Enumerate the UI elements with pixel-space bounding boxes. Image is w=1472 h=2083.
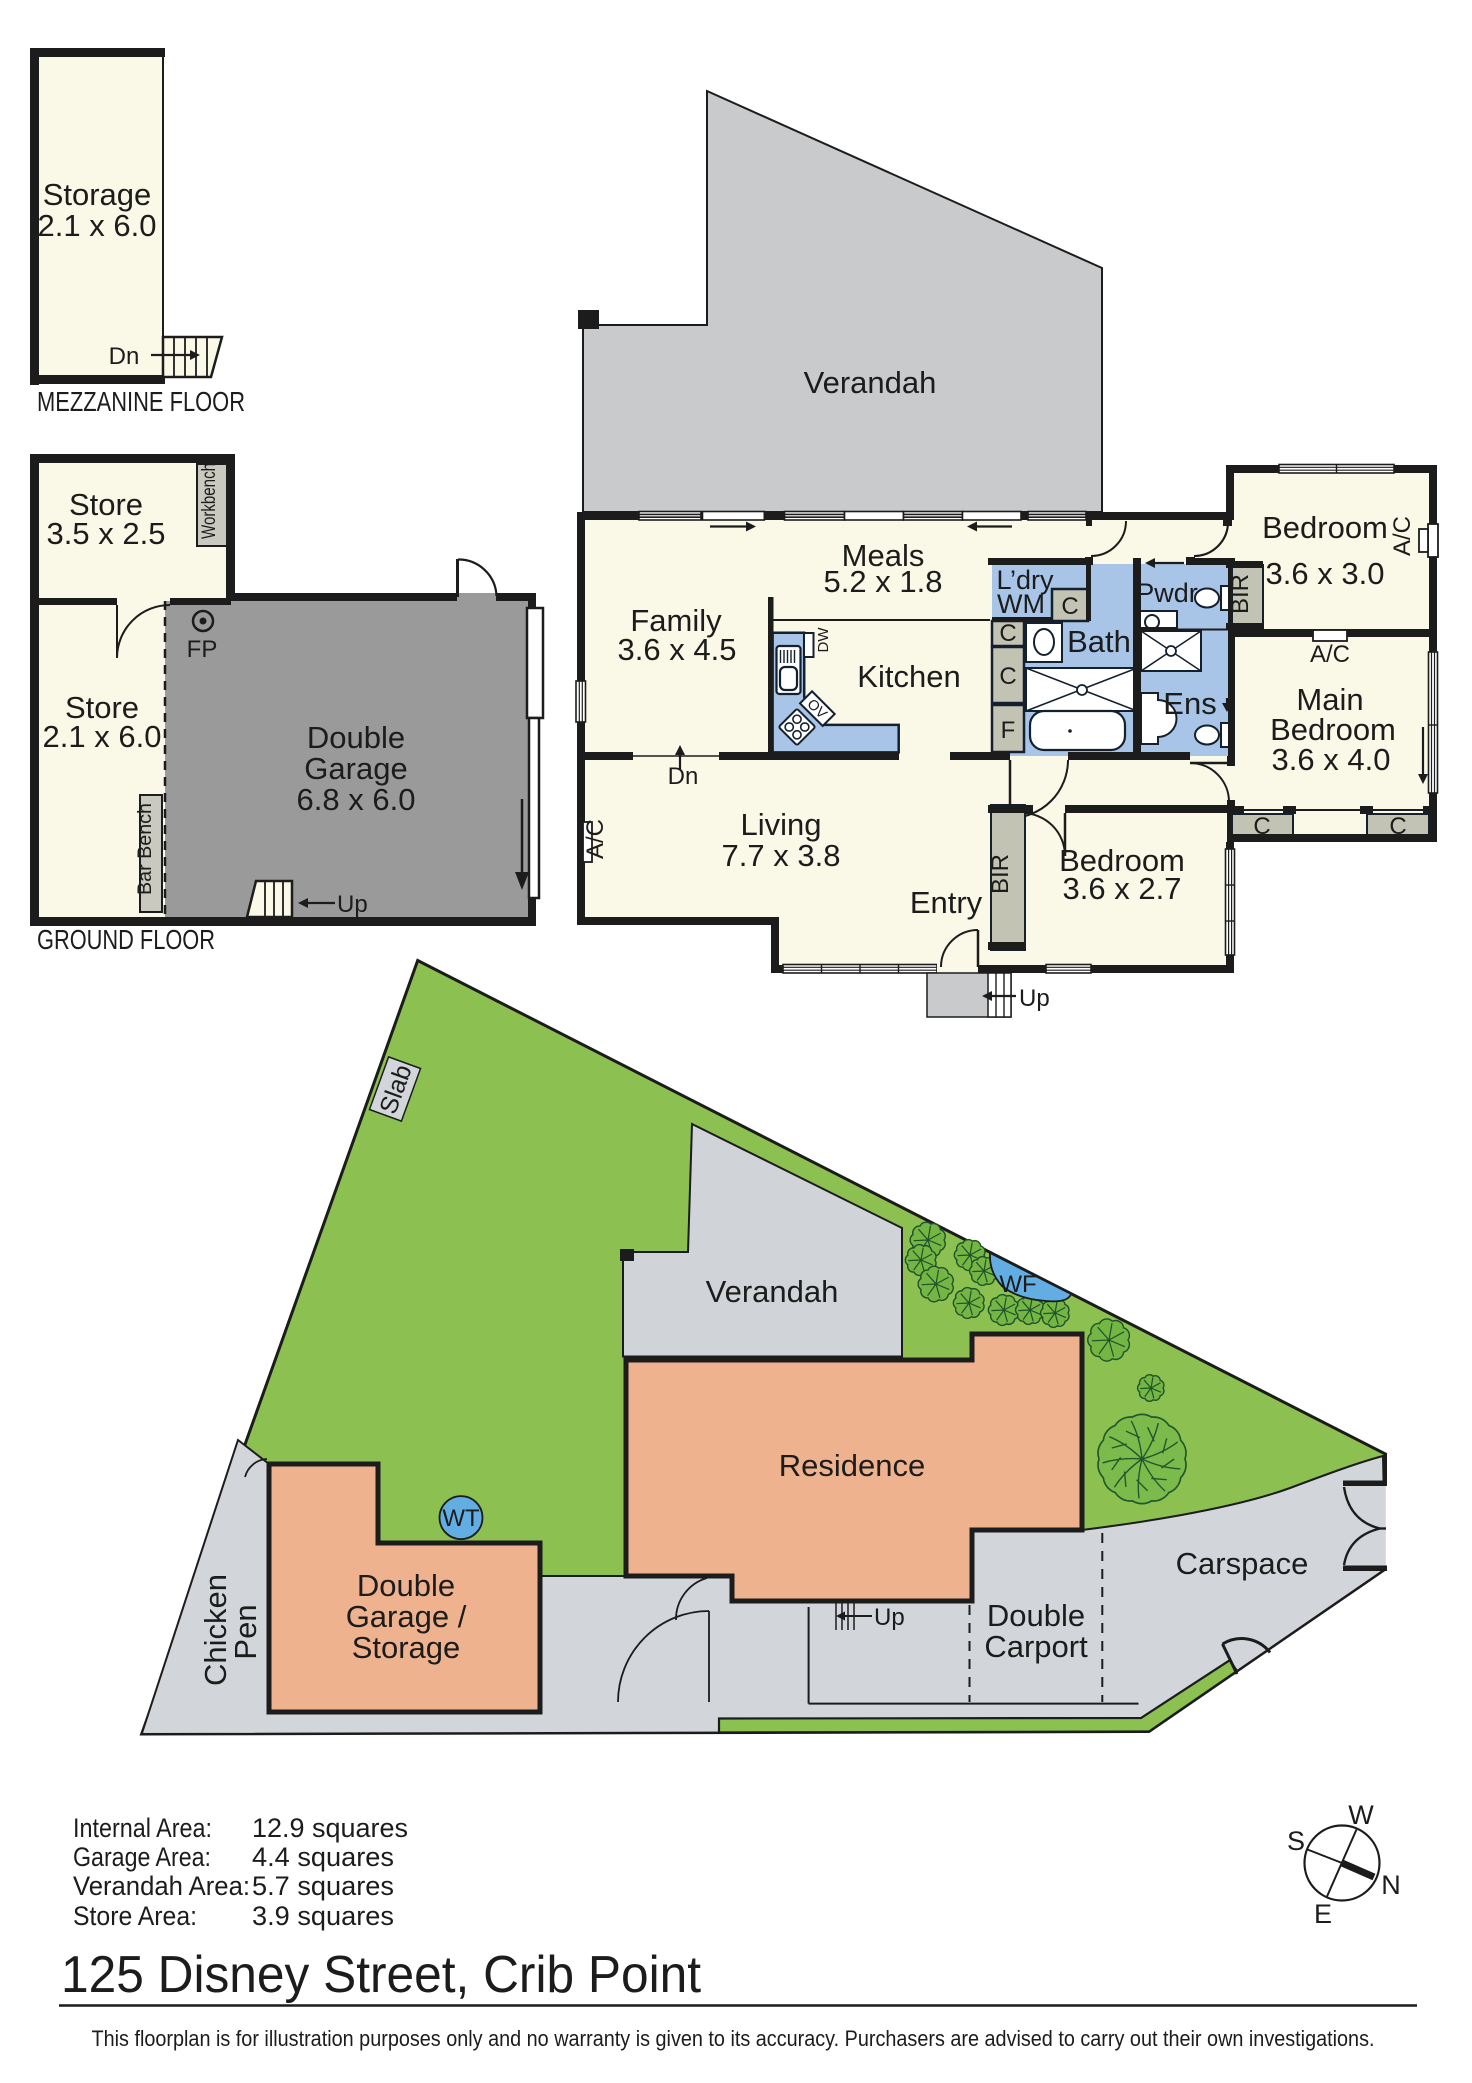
svg-text:3.6 x 4.5: 3.6 x 4.5	[618, 632, 737, 667]
svg-text:Internal Area:: Internal Area:	[73, 1813, 212, 1843]
svg-text:Pwdr: Pwdr	[1136, 578, 1198, 608]
svg-text:Carport: Carport	[984, 1629, 1088, 1664]
svg-text:C: C	[1253, 813, 1270, 840]
svg-text:Double: Double	[357, 1568, 455, 1603]
svg-text:3.6 x 2.7: 3.6 x 2.7	[1063, 871, 1182, 906]
svg-text:Storage: Storage	[43, 177, 152, 212]
svg-text:Store Area:: Store Area:	[73, 1901, 197, 1931]
svg-text:A/C: A/C	[582, 819, 609, 859]
svg-text:Garage: Garage	[304, 751, 407, 786]
svg-text:E: E	[1314, 1899, 1332, 1929]
svg-text:2.1 x 6.0: 2.1 x 6.0	[38, 208, 157, 243]
svg-text:BIR: BIR	[987, 854, 1014, 894]
svg-text:A/C: A/C	[1310, 641, 1350, 668]
svg-text:WF: WF	[999, 1271, 1036, 1298]
svg-text:Ens: Ens	[1163, 686, 1216, 721]
svg-text:Double: Double	[307, 720, 405, 755]
svg-text:Up: Up	[1019, 985, 1050, 1012]
svg-text:Verandah: Verandah	[804, 365, 937, 400]
svg-text:5.2 x 1.8: 5.2 x 1.8	[824, 564, 943, 599]
svg-text:Bedroom: Bedroom	[1262, 510, 1388, 545]
svg-text:6.8 x 6.0: 6.8 x 6.0	[297, 782, 416, 817]
svg-text:FP: FP	[187, 636, 218, 663]
svg-text:N: N	[1381, 1870, 1401, 1900]
svg-text:BIR: BIR	[1227, 574, 1254, 614]
svg-text:Bar Bench: Bar Bench	[135, 803, 156, 895]
svg-text:Up: Up	[337, 891, 368, 918]
svg-text:Verandah: Verandah	[706, 1274, 839, 1309]
svg-text:Garage /: Garage /	[346, 1599, 467, 1634]
svg-text:Dn: Dn	[109, 343, 140, 370]
svg-text:3.6 x 3.0: 3.6 x 3.0	[1266, 556, 1385, 591]
svg-text:Storage: Storage	[352, 1630, 461, 1665]
svg-text:Garage Area:: Garage Area:	[73, 1842, 211, 1872]
svg-text:Carspace: Carspace	[1176, 1546, 1309, 1581]
svg-text:S: S	[1287, 1826, 1305, 1856]
svg-text:12.9 squares: 12.9 squares	[252, 1813, 408, 1843]
svg-text:C: C	[999, 620, 1016, 647]
svg-text:Bath: Bath	[1067, 624, 1131, 659]
svg-text:Double: Double	[987, 1598, 1085, 1633]
svg-text:3.6 x 4.0: 3.6 x 4.0	[1272, 742, 1391, 777]
svg-text:Residence: Residence	[779, 1448, 925, 1483]
svg-text:DW: DW	[815, 627, 832, 653]
svg-text:GROUND FLOOR: GROUND FLOOR	[37, 924, 215, 955]
svg-text:Pen: Pen	[228, 1604, 263, 1659]
svg-text:3.9 squares: 3.9 squares	[252, 1901, 394, 1931]
svg-text:Dn: Dn	[668, 763, 699, 790]
svg-text:F: F	[1001, 717, 1016, 744]
svg-text:This floorplan is for illustra: This floorplan is for illustration purpo…	[92, 2026, 1375, 2051]
svg-text:125 Disney Street, Crib Point: 125 Disney Street, Crib Point	[61, 1946, 702, 2004]
svg-text:A/C: A/C	[1389, 516, 1416, 556]
svg-text:MEZZANINE FLOOR: MEZZANINE FLOOR	[37, 386, 245, 417]
svg-text:Up: Up	[874, 1604, 905, 1631]
svg-text:WT: WT	[442, 1505, 480, 1532]
svg-text:C: C	[999, 663, 1016, 690]
svg-text:7.7 x 3.8: 7.7 x 3.8	[722, 838, 841, 873]
svg-text:WM: WM	[997, 589, 1045, 619]
svg-text:Living: Living	[741, 807, 822, 842]
svg-text:Kitchen: Kitchen	[857, 659, 960, 694]
svg-text:Verandah Area:: Verandah Area:	[73, 1871, 250, 1901]
svg-text:C: C	[1389, 813, 1406, 840]
svg-text:W: W	[1348, 1800, 1374, 1830]
svg-text:4.4 squares: 4.4 squares	[252, 1842, 394, 1872]
svg-text:Entry: Entry	[910, 885, 983, 920]
svg-text:2.1 x 6.0: 2.1 x 6.0	[43, 719, 162, 754]
svg-text:Workbench: Workbench	[199, 463, 220, 539]
svg-text:C: C	[1061, 593, 1078, 620]
svg-text:3.5 x 2.5: 3.5 x 2.5	[47, 516, 166, 551]
svg-text:5.7 squares: 5.7 squares	[252, 1871, 394, 1901]
